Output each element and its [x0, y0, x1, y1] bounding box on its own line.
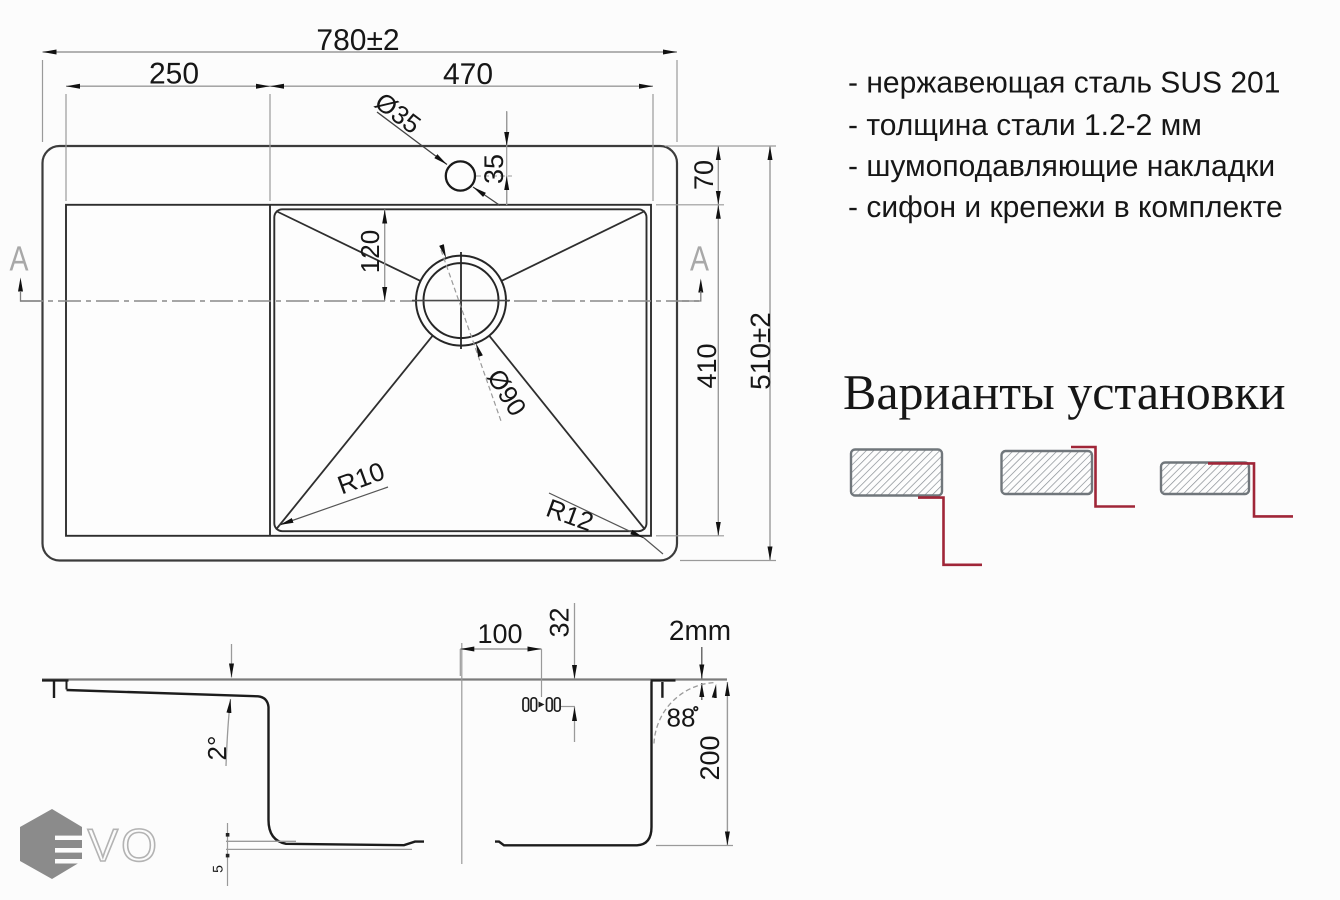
- svg-text:35: 35: [479, 154, 509, 184]
- svg-text:250: 250: [149, 58, 199, 91]
- svg-text:70: 70: [689, 160, 719, 190]
- svg-text:100: 100: [477, 619, 522, 649]
- svg-text:- толщина стали 1.2-2 мм: - толщина стали 1.2-2 мм: [848, 109, 1202, 142]
- svg-text:32: 32: [545, 607, 575, 637]
- svg-text:2mm: 2mm: [669, 615, 731, 646]
- svg-text:88: 88: [667, 703, 696, 733]
- svg-text:410: 410: [692, 343, 722, 388]
- svg-text:470: 470: [443, 58, 493, 91]
- svg-text:- нержавеющая сталь SUS 201: - нержавеющая сталь SUS 201: [848, 67, 1280, 100]
- svg-text:510±2: 510±2: [745, 312, 776, 390]
- svg-text:A: A: [10, 240, 30, 279]
- svg-text:- сифон и крепежи в комплекте: - сифон и крепежи в комплекте: [848, 191, 1283, 224]
- svg-text:Варианты установки: Варианты установки: [843, 364, 1285, 420]
- svg-text:5: 5: [210, 865, 226, 873]
- svg-text:- шумоподавляющие накладки: - шумоподавляющие накладки: [848, 150, 1275, 183]
- svg-text:2°: 2°: [202, 736, 232, 761]
- svg-text:200: 200: [695, 735, 725, 780]
- svg-text:120: 120: [355, 230, 385, 273]
- svg-text:VO: VO: [88, 819, 160, 871]
- svg-text:A: A: [690, 240, 710, 279]
- svg-text:Ø35: Ø35: [369, 86, 426, 140]
- svg-text:780±2: 780±2: [316, 24, 399, 57]
